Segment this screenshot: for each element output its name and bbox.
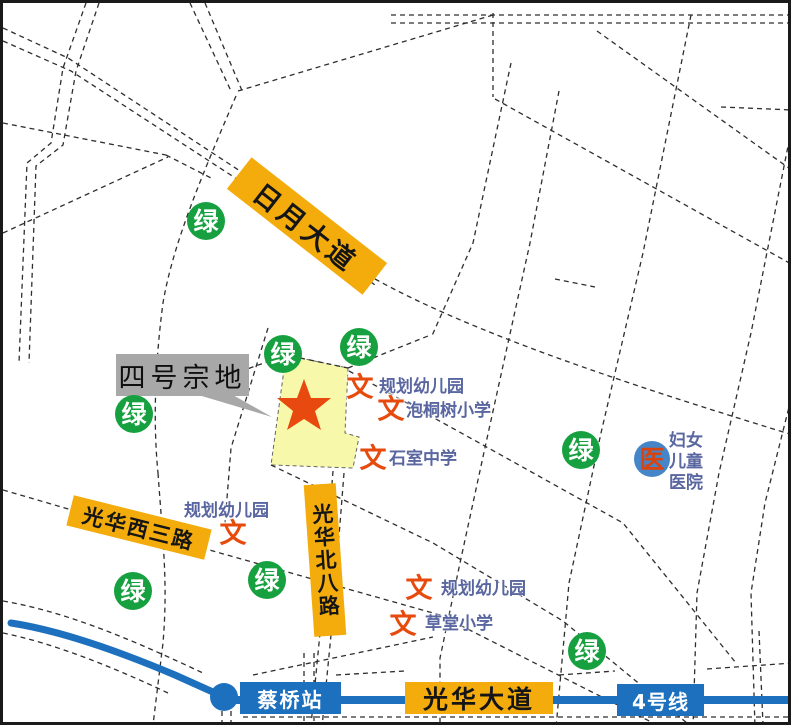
education-marker-icon: 文 [378, 397, 405, 424]
metro-station-circle [210, 683, 238, 711]
callout-pointer [195, 394, 272, 417]
education-marker-icon: 文 [360, 446, 387, 473]
green-space-marker: 绿 [187, 202, 225, 240]
education-marker-icon: 文 [220, 521, 247, 548]
metro-line-label: 4号线 [617, 684, 704, 716]
poi-label-planned-kindergarten: 规划幼儿园 [184, 501, 269, 521]
education-marker-icon: 文 [390, 612, 417, 639]
metro-station-label: 蔡桥站 [240, 682, 341, 714]
green-space-marker: 绿 [340, 328, 378, 366]
education-marker-icon: 文 [406, 576, 433, 603]
planning-map: 四号宗地 绿 绿 绿 绿 绿 绿 绿 绿 文 规划幼儿园 文 泡桐树小学 文 石… [0, 0, 791, 725]
green-space-marker: 绿 [562, 431, 600, 469]
green-space-marker: 绿 [114, 572, 152, 610]
poi-label-planned-kindergarten: 规划幼儿园 [441, 579, 526, 599]
green-space-marker: 绿 [115, 395, 153, 433]
green-space-marker: 绿 [568, 632, 606, 670]
poi-label-paotongshu-primary: 泡桐树小学 [406, 401, 491, 421]
poi-label-caotang-primary: 草堂小学 [425, 614, 493, 634]
hospital-marker-icon: 医 [634, 441, 670, 477]
road-label-guanghua-avenue: 光华大道 [405, 682, 553, 714]
poi-label-women-children-hospital: 妇女 儿童 医院 [669, 431, 703, 494]
parcel-callout-label: 四号宗地 [116, 354, 249, 396]
education-marker-icon: 文 [347, 375, 374, 402]
green-space-marker: 绿 [264, 335, 302, 373]
green-space-marker: 绿 [248, 561, 286, 599]
poi-label-shishi-middle: 石室中学 [389, 449, 457, 469]
